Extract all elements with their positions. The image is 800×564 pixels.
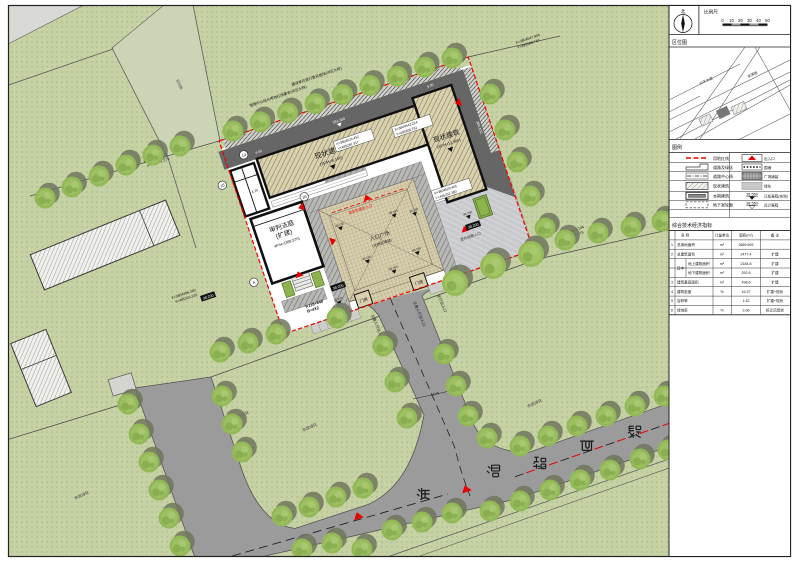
svg-text:围墙: 围墙 [764, 165, 772, 170]
svg-text:出入口: 出入口 [764, 156, 775, 161]
svg-text:30: 30 [747, 18, 752, 23]
svg-text:绿化: 绿化 [764, 184, 772, 189]
svg-text:10: 10 [729, 18, 734, 23]
svg-text:292.6: 292.6 [742, 271, 751, 275]
svg-text:名 称: 名 称 [677, 233, 690, 238]
svg-text:40: 40 [756, 18, 761, 23]
svg-text:扩建: 扩建 [771, 251, 779, 256]
svg-text:3669.693: 3669.693 [739, 243, 754, 247]
svg-text:3.96: 3.96 [743, 309, 750, 313]
svg-text:综合技术经济指标: 综合技术经济指标 [672, 222, 712, 229]
svg-text:扩建: 扩建 [771, 270, 779, 275]
svg-text:4: 4 [671, 290, 673, 294]
svg-text:1: 1 [671, 243, 673, 247]
svg-text:计量单位: 计量单位 [715, 233, 730, 238]
svg-text:38.560: 38.560 [746, 192, 758, 196]
svg-text:扩建+现状: 扩建+现状 [767, 289, 784, 294]
svg-text:用地红线: 用地红线 [713, 155, 729, 161]
svg-text:扩建: 扩建 [771, 280, 779, 285]
svg-text:2184.8: 2184.8 [741, 262, 752, 266]
svg-text:拆迁后现状: 拆迁后现状 [766, 308, 784, 313]
svg-text:容积率: 容积率 [677, 298, 688, 303]
svg-text:50: 50 [765, 18, 770, 23]
svg-text:地下室轮廓: 地下室轮廓 [713, 202, 733, 208]
svg-text:扩建+现状: 扩建+现状 [767, 298, 784, 303]
svg-text:3: 3 [671, 281, 673, 285]
svg-text:地下建筑面积: 地下建筑面积 [688, 270, 710, 275]
svg-text:区位图: 区位图 [672, 39, 687, 46]
svg-text:扩建: 扩建 [771, 261, 779, 266]
svg-text:38.560: 38.560 [746, 201, 758, 205]
svg-text:6: 6 [671, 309, 673, 313]
svg-text:图例: 图例 [672, 144, 682, 151]
svg-text:498.6: 498.6 [742, 281, 751, 285]
svg-text:建筑密度: 建筑密度 [677, 289, 692, 294]
svg-text:比例尺: 比例尺 [704, 9, 718, 16]
svg-text:5: 5 [671, 299, 673, 303]
svg-text:2477.4: 2477.4 [741, 252, 752, 256]
svg-text:2: 2 [671, 252, 673, 256]
svg-text:其中: 其中 [677, 266, 685, 271]
svg-text:广场铺装: 广场铺装 [764, 174, 779, 179]
svg-text:设计高程: 设计高程 [764, 203, 779, 208]
svg-text:1.42: 1.42 [743, 299, 750, 303]
svg-text:20: 20 [738, 18, 743, 23]
svg-text:总用地面积: 总用地面积 [677, 242, 695, 247]
svg-text:道路中心线: 道路中心线 [713, 173, 733, 179]
svg-text:绿地率: 绿地率 [677, 308, 688, 313]
svg-text:本期建筑: 本期建筑 [713, 193, 729, 199]
svg-text:面积(m²): 面积(m²) [739, 233, 753, 238]
svg-text:备 注: 备 注 [771, 233, 780, 238]
svg-text:已知高程(实测): 已知高程(实测) [764, 194, 788, 199]
svg-text:北: 北 [681, 8, 686, 15]
svg-text:地上建筑面积: 地上建筑面积 [688, 261, 710, 266]
svg-text:总建筑面积: 总建筑面积 [677, 251, 695, 256]
svg-text:现状建筑: 现状建筑 [713, 183, 729, 189]
svg-text:16.37: 16.37 [742, 290, 751, 294]
svg-text:道路及绿化: 道路及绿化 [713, 164, 733, 170]
svg-text:建筑基底面积: 建筑基底面积 [677, 280, 699, 285]
